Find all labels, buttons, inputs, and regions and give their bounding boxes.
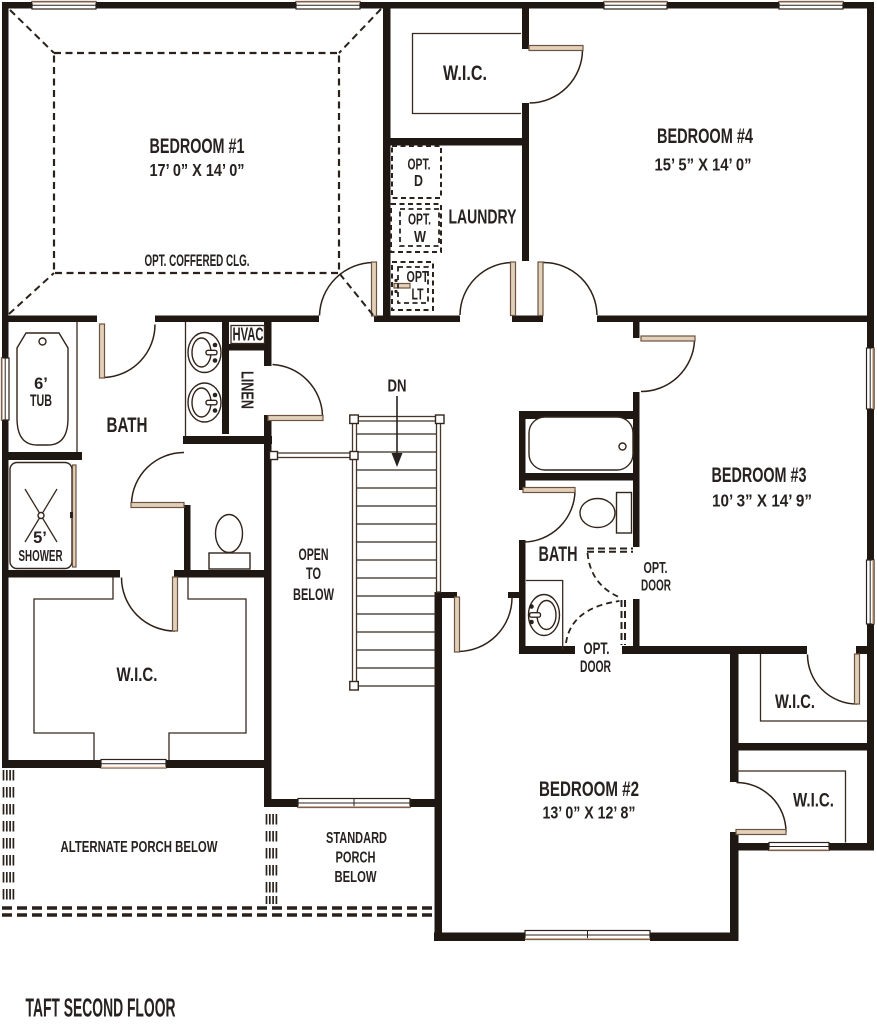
svg-text:BEDROOM #2: BEDROOM #2	[539, 778, 639, 801]
svg-text:13’ 0” X 12’ 8”: 13’ 0” X 12’ 8”	[543, 803, 636, 823]
svg-text:15’ 5” X 14’ 0”: 15’ 5” X 14’ 0”	[655, 155, 752, 175]
svg-text:W.I.C.: W.I.C.	[775, 692, 815, 713]
svg-text:LT: LT	[412, 287, 424, 304]
svg-text:HVAC: HVAC	[233, 325, 264, 345]
svg-text:OPT. COFFERED CLG.: OPT. COFFERED CLG.	[145, 252, 250, 270]
svg-text:BELOW: BELOW	[293, 585, 335, 604]
svg-text:BEDROOM #3: BEDROOM #3	[712, 464, 807, 487]
svg-text:W.I.C.: W.I.C.	[793, 791, 834, 812]
svg-text:SHOWER: SHOWER	[19, 548, 63, 565]
svg-text:PORCH: PORCH	[336, 849, 376, 866]
svg-text:DN: DN	[388, 376, 407, 396]
svg-text:10’ 3” X 14’ 9”: 10’ 3” X 14’ 9”	[712, 491, 812, 511]
svg-text:W.I.C.: W.I.C.	[117, 665, 158, 686]
svg-text:LINEN: LINEN	[238, 371, 258, 409]
svg-text:STANDARD: STANDARD	[326, 830, 387, 847]
svg-text:BELOW: BELOW	[335, 869, 377, 886]
svg-text:OPT.: OPT.	[408, 157, 431, 174]
svg-text:BEDROOM #4: BEDROOM #4	[657, 125, 753, 148]
svg-text:LAUNDRY: LAUNDRY	[449, 206, 517, 229]
svg-text:DOOR: DOOR	[641, 578, 671, 595]
svg-text:OPT.: OPT.	[584, 640, 610, 658]
svg-text:TO: TO	[306, 564, 321, 583]
svg-text:OPT.: OPT.	[408, 212, 431, 229]
svg-text:D: D	[414, 173, 423, 190]
svg-text:OPT: OPT	[407, 269, 429, 286]
svg-text:OPEN: OPEN	[299, 545, 329, 564]
svg-text:17’ 0” X 14’ 0”: 17’ 0” X 14’ 0”	[150, 160, 245, 180]
svg-text:TUB: TUB	[30, 392, 52, 410]
svg-text:ALTERNATE PORCH BELOW: ALTERNATE PORCH BELOW	[61, 839, 219, 856]
svg-text:BATH: BATH	[539, 542, 578, 566]
svg-text:BATH: BATH	[107, 413, 148, 437]
svg-text:BEDROOM #1: BEDROOM #1	[150, 135, 245, 158]
svg-text:DOOR: DOOR	[580, 658, 611, 676]
svg-text:5’: 5’	[33, 529, 47, 547]
svg-text:W: W	[414, 229, 426, 246]
svg-text:W.I.C.: W.I.C.	[443, 62, 487, 85]
svg-text:6’: 6’	[34, 375, 48, 393]
svg-text:TAFT SECOND FLOOR: TAFT SECOND FLOOR	[26, 995, 176, 1023]
svg-text:OPT.: OPT.	[644, 560, 668, 577]
